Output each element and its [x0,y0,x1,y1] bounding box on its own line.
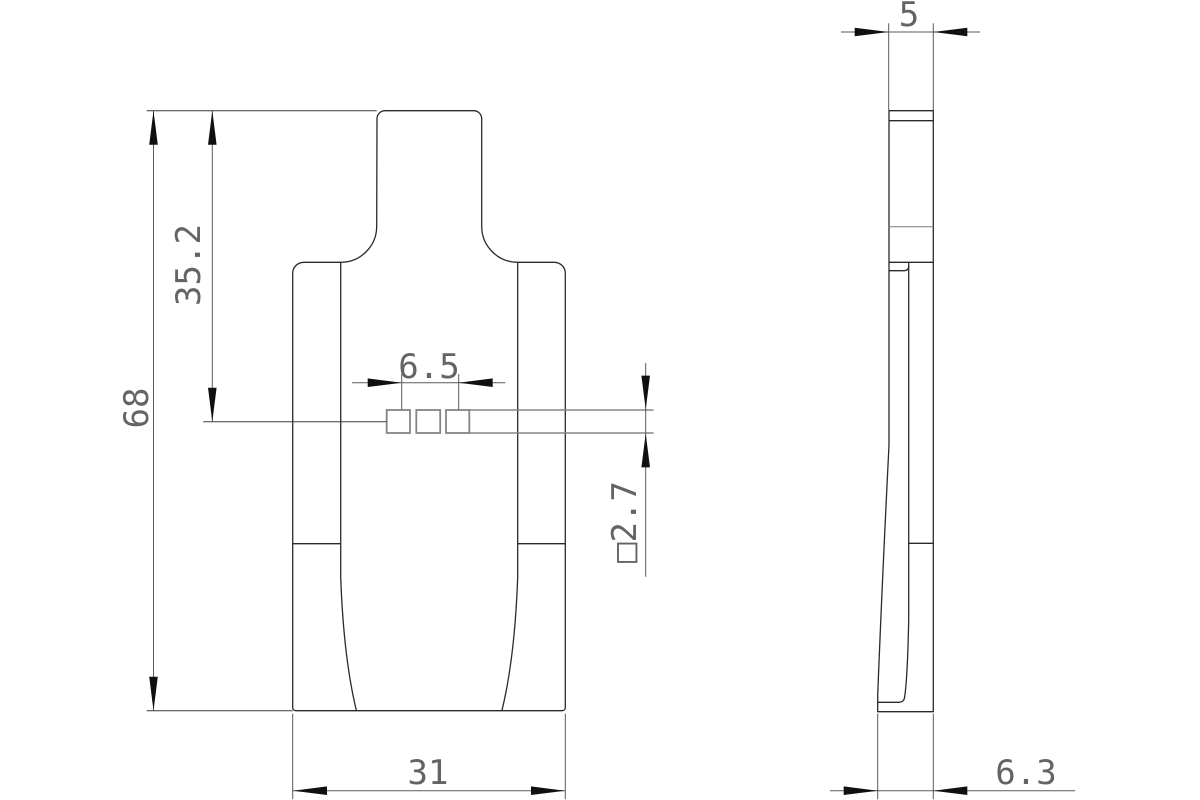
arrowhead-up [208,111,217,145]
dim-68-label: 68 [117,388,157,429]
arrowhead-up [149,111,158,145]
arrowhead-down [149,677,158,711]
dimension-thickness-top: 5 [841,0,980,110]
arrowhead-up [641,433,650,467]
drawing-canvas: 68 35.2 6.5 □2.7 31 [0,0,1200,800]
arrowhead-left [933,786,967,795]
arrowhead-right [844,786,878,795]
arrowhead-left [459,378,493,387]
front-view [293,111,566,711]
arrowhead-down [641,376,650,410]
dim-35-2-label: 35.2 [169,224,209,306]
side-pocket-top-line [889,266,909,271]
side-pocket-inner-line [878,263,909,703]
front-inner-rail-right [502,263,518,710]
arrowhead-left [933,28,967,37]
square-slot-2 [416,410,440,433]
technical-drawing-page: 68 35.2 6.5 □2.7 31 [0,0,1200,800]
arrowhead-left [293,786,327,795]
dim-6-5-label: 6.5 [398,347,459,387]
dimension-upper-height: 35.2 [169,111,387,422]
arrowhead-right [855,28,889,37]
side-view [878,111,934,712]
arrowhead-right [531,786,565,795]
dimension-overall-width: 31 [293,714,566,800]
square-slot-1 [387,410,410,433]
dimension-thickness-bottom: 6.3 [830,714,1075,800]
arrowhead-right [368,378,402,387]
arrowhead-down [208,388,217,422]
dim-31-label: 31 [408,753,449,793]
side-view-outline [878,111,934,712]
dim-6-3-label: 6.3 [995,753,1056,793]
dim-5-label: 5 [899,0,919,35]
dim-2-7-label: □2.7 [605,481,645,563]
dimension-slot-square: □2.7 [469,363,653,577]
square-slot-3 [446,410,469,433]
front-inner-rail-left [341,263,357,710]
dimension-slot-span: 6.5 [352,347,505,410]
dimension-overall-height: 68 [117,111,377,711]
